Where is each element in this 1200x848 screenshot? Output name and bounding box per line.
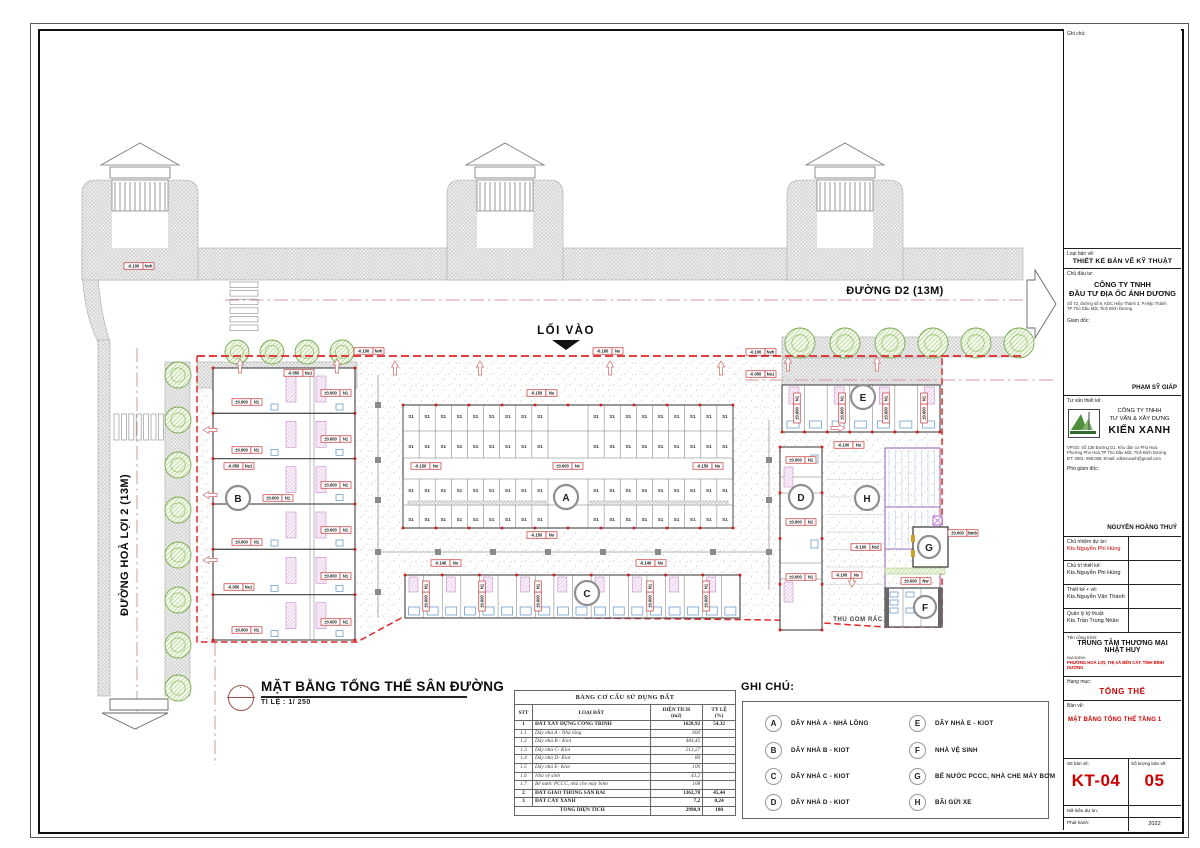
stall-label: S1 [457, 444, 463, 449]
elevation-marker: -0.140Ns [636, 560, 666, 567]
stall-label: S1 [625, 444, 631, 449]
legend-label: DÃY NHÀ A - NHÀ LỒNG [791, 720, 869, 727]
svg-text:N1: N1 [254, 540, 260, 545]
svg-text:±0.000: ±0.000 [266, 496, 279, 501]
svg-text:N1: N1 [808, 458, 814, 463]
deputy-name: NGUYỄN HOÀNG THUỶ [1107, 524, 1177, 531]
svg-text:±0.000: ±0.000 [324, 391, 337, 396]
stall-label: S1 [505, 444, 511, 449]
svg-text:N1: N1 [424, 583, 429, 589]
svg-text:Nvh: Nvh [145, 264, 153, 269]
svg-text:N1: N1 [922, 395, 927, 401]
elevation-marker: ±0.000N1 [839, 393, 846, 423]
stall-label: S1 [690, 517, 696, 522]
svg-text:Ns: Ns [658, 561, 664, 566]
svg-text:N1: N1 [648, 583, 653, 589]
elevation-marker: ±0.000N1 [786, 519, 816, 526]
svg-text:Ns: Ns [615, 349, 621, 354]
elevation-marker: ±0.000N1 [321, 527, 351, 534]
block-label-G: G [918, 536, 940, 558]
tree-icon [165, 542, 191, 568]
stall-label: S1 [722, 488, 728, 493]
svg-text:±0.000: ±0.000 [789, 520, 802, 525]
svg-text:±0.000: ±0.000 [424, 595, 429, 608]
svg-text:Ns1: Ns1 [245, 585, 253, 590]
stall-label: S1 [424, 488, 430, 493]
sheet-qty-label: Số lượng bản vẽ: [1128, 759, 1181, 766]
svg-text:Nvh: Nvh [767, 350, 775, 355]
project-name: NHẬT HUY [1064, 647, 1181, 654]
elevation-marker: ±0.000N1 [535, 581, 542, 611]
type-label: Loại bản vẽ: [1064, 249, 1181, 257]
tree-icon [785, 328, 815, 358]
svg-text:N1: N1 [840, 395, 845, 401]
elevation-marker: -0.100Nvh [746, 349, 776, 356]
sheet-label: Bản vẽ: [1064, 701, 1181, 709]
role-label: Quản lý kỹ thuật: [1064, 609, 1181, 617]
svg-text:±0.000: ±0.000 [480, 595, 485, 608]
sheet-no-value: KT-04 [1064, 771, 1128, 791]
svg-text:Nw: Nw [922, 579, 929, 584]
svg-text:Ns: Ns [549, 533, 555, 538]
svg-text:-0.150: -0.150 [415, 464, 427, 469]
stall-label: S1 [658, 488, 664, 493]
drawing-sheet: S1S1S1S1S1S1S1S1S1S1S1S1S1S1S1S1S1S1S1S1… [0, 0, 1200, 848]
tree-icon [918, 328, 948, 358]
project-label: Tên công trình: [1064, 633, 1181, 640]
stall-label: S1 [408, 517, 414, 522]
stall-label: S1 [722, 414, 728, 419]
svg-text:B: B [234, 494, 241, 505]
svg-text:-0.050: -0.050 [228, 464, 240, 469]
tree-icon [165, 587, 191, 613]
block-label-A: A [554, 485, 578, 509]
legend-key: F [909, 742, 926, 759]
block-label-F: F [914, 596, 936, 618]
elevation-marker: ±0.000N1 [479, 581, 486, 611]
elevation-marker: -0.160Ns [593, 348, 623, 355]
svg-text:±0.000: ±0.000 [704, 595, 709, 608]
stall-label: S1 [658, 517, 664, 522]
legend-key: C [765, 768, 782, 785]
role-value: Kts.Nguyễn Văn Thành [1064, 593, 1181, 600]
category-value: TỔNG THỂ [1064, 687, 1181, 696]
svg-text:ĐƯỜNG HOÀ LỢI 2 (13M): ĐƯỜNG HOÀ LỢI 2 (13M) [118, 474, 131, 616]
legend-label: BỂ NƯỚC PCCC, NHÀ CHE MÁY BƠM [935, 773, 1055, 780]
stall-label: S1 [521, 414, 527, 419]
stall-label: S1 [642, 444, 648, 449]
entrance-arrow-icon [552, 340, 580, 350]
stall-label: S1 [625, 414, 631, 419]
stall-label: S1 [609, 517, 615, 522]
trash-area-label: THU GOM RÁC [833, 616, 883, 623]
svg-text:Nc: Nc [575, 464, 581, 469]
svg-text:±0.000: ±0.000 [789, 575, 802, 580]
svg-text:±0.000: ±0.000 [324, 620, 337, 625]
svg-text:N1: N1 [285, 496, 291, 501]
elevation-marker: ±0.000Nmb [948, 530, 978, 537]
svg-text:N1: N1 [343, 391, 349, 396]
svg-text:N1: N1 [884, 395, 889, 401]
pavilion [787, 143, 903, 280]
svg-text:-0.140: -0.140 [640, 561, 652, 566]
stall-label: S1 [690, 488, 696, 493]
svg-text:±0.000: ±0.000 [884, 407, 889, 420]
svg-text:±0.000: ±0.000 [840, 407, 845, 420]
svg-text:Ns2: Ns2 [872, 545, 880, 550]
tree-icon [260, 340, 284, 364]
table-row: 1.2Dãy nhà B - Kiot484,45 [515, 738, 736, 747]
svg-text:D: D [797, 493, 804, 504]
land-use-table: BẢNG CƠ CẤU SỬ DỤNG ĐẤT STT LOẠI ĐẤT DIỆ… [514, 690, 736, 816]
svg-text:±0.000: ±0.000 [922, 407, 927, 420]
kien-xanh-logo [1068, 409, 1100, 438]
investor-name: CÔNG TY TNHH [1064, 280, 1181, 289]
stall-label: S1 [674, 517, 680, 522]
stall-label: S1 [537, 444, 543, 449]
legend-key: H [909, 794, 926, 811]
svg-text:-0.100: -0.100 [358, 349, 370, 354]
elevation-marker: ±0.000N1 [232, 627, 262, 634]
stall-label: S1 [521, 444, 527, 449]
svg-text:A: A [562, 493, 569, 504]
svg-text:N1: N1 [343, 483, 349, 488]
stall-label: S1 [457, 517, 463, 522]
elevation-marker: ±0.000N1 [786, 457, 816, 464]
svg-text:-0.150: -0.150 [531, 391, 543, 396]
svg-text:N1: N1 [795, 395, 800, 401]
tree-icon [830, 328, 860, 358]
elevation-marker: ±0.000N1 [263, 495, 293, 502]
stall-label: S1 [658, 444, 664, 449]
elevation-marker: ±0.000N1 [321, 573, 351, 580]
block-label-D: D [789, 485, 813, 509]
notes-label: Ghi chú: [1064, 29, 1181, 37]
stall-label: S1 [473, 488, 479, 493]
svg-text:N1: N1 [254, 400, 260, 405]
role-value: Kts.Nguyễn Phi Hùng [1064, 569, 1181, 576]
tree-icon [1004, 328, 1034, 358]
legend-title: GHI CHÚ: [741, 681, 1049, 693]
stall-label: S1 [521, 517, 527, 522]
elevation-marker: ±0.000N1 [921, 393, 928, 423]
svg-text:-0.150: -0.150 [697, 464, 709, 469]
elevation-marker: -0.100Nvh [354, 348, 384, 355]
stall-label: S1 [722, 517, 728, 522]
table-row: 1.7Bể nước PCCC, nhà che máy bơm108 [515, 781, 736, 790]
role-value: Kts.Nguyễn Phi Hùng [1064, 545, 1181, 552]
pavilion [447, 143, 563, 280]
svg-text:±0.000: ±0.000 [536, 595, 541, 608]
elevation-marker: ±0.000N1 [321, 619, 351, 626]
consultant-name: TƯ VẤN & XÂY DỰNG [1102, 416, 1177, 422]
title-block: Ghi chú: Loại bản vẽ: THIẾT KẾ BẢN VẼ KỸ… [1063, 29, 1181, 830]
location-value: PHƯỜNG HOÀ LỢI, THỊ XÃ BẾN CÁT, TỈNH BÌN… [1064, 660, 1181, 670]
table-row: 1.4Dãy nhà D- Kiot80 [515, 755, 736, 764]
svg-text:Ns: Ns [715, 464, 721, 469]
table-row: 1.6Nhà vệ sinh43,2 [515, 772, 736, 781]
svg-text:N1: N1 [480, 583, 485, 589]
project-name: TRUNG TÂM THƯƠNG MẠI [1064, 640, 1181, 647]
svg-text:±0.000: ±0.000 [789, 458, 802, 463]
table-row: 1.5Dãy nhà E- Kiot100 [515, 763, 736, 772]
elevation-marker: -0.050Ns1 [224, 463, 254, 470]
stall-label: S1 [408, 414, 414, 419]
legend-key: B [765, 742, 782, 759]
svg-text:-0.100: -0.100 [128, 264, 140, 269]
tree-icon [165, 407, 191, 433]
legend-label: NHÀ VỆ SINH [935, 747, 978, 754]
svg-text:±0.000: ±0.000 [235, 540, 248, 545]
svg-text:Ns1: Ns1 [767, 372, 775, 377]
tree-icon [295, 340, 319, 364]
block-d-kiot [780, 447, 822, 630]
stall-label: S1 [473, 517, 479, 522]
svg-text:-0.050: -0.050 [288, 371, 300, 376]
stall-label: S1 [625, 517, 631, 522]
svg-text:N1: N1 [343, 437, 349, 442]
stall-label: S1 [408, 444, 414, 449]
stall-label: S1 [489, 517, 495, 522]
legend-key: G [909, 768, 926, 785]
elevation-marker: ±0.000Nw [901, 578, 931, 585]
svg-text:H: H [863, 494, 870, 505]
svg-text:E: E [860, 393, 867, 404]
road-continue-down-rect [110, 699, 168, 710]
stall-label: S1 [625, 488, 631, 493]
stall-label: S1 [690, 414, 696, 419]
investor-name: ĐẦU TƯ ĐỊA ỐC ÁNH DƯƠNG [1064, 289, 1181, 298]
tree-icon [961, 328, 991, 358]
svg-text:±0.000: ±0.000 [556, 464, 569, 469]
table-row: 1ĐẤT XÂY DỰNG CÔNG TRÌNH1628,9254,32 [515, 721, 736, 730]
stall-label: S1 [440, 444, 446, 449]
block-label-H: H [855, 486, 879, 510]
elevation-marker: -0.150Ns [693, 463, 723, 470]
stall-label: S1 [674, 414, 680, 419]
elevation-marker: -0.100Ns2 [851, 544, 881, 551]
stall-label: S1 [593, 517, 599, 522]
stall-label: S1 [690, 444, 696, 449]
elevation-marker: -0.050Ns1 [284, 370, 314, 377]
elevation-marker: -0.150Ns [411, 463, 441, 470]
svg-text:±0.000: ±0.000 [904, 579, 917, 584]
stall-label: S1 [593, 414, 599, 419]
block-c-kiot [405, 575, 740, 618]
issue-year: 2022 [1128, 818, 1181, 827]
svg-text:-0.100: -0.100 [855, 545, 867, 550]
svg-text:±0.000: ±0.000 [235, 448, 248, 453]
elevation-marker: ±0.000N1 [232, 539, 262, 546]
stall-label: S1 [440, 517, 446, 522]
block-label-E: E [851, 385, 875, 409]
table-total-row: TỔNG DIỆN TÍCH2998,9100 [515, 806, 736, 815]
stall-label: S1 [642, 488, 648, 493]
stall-label: S1 [706, 444, 712, 449]
tree-icon [165, 362, 191, 388]
table-row: 2ĐẤT GIAO THÔNG SÂN BÃI1362,7845,44 [515, 789, 736, 798]
role-label: Thiết kế + vẽ: [1064, 585, 1181, 593]
director-name: PHẠM SỸ GIÁP [1132, 384, 1177, 391]
svg-text:-0.160: -0.160 [597, 349, 609, 354]
legend-key: D [765, 794, 782, 811]
stall-label: S1 [706, 517, 712, 522]
svg-text:Nvh: Nvh [375, 349, 383, 354]
tree-icon [330, 340, 354, 364]
legend-key: A [765, 715, 782, 732]
legend-label: DÃY NHÀ C - KIOT [791, 773, 850, 780]
consultant-name: CÔNG TY TNHH [1102, 408, 1177, 414]
road-continue-down-icon [102, 713, 168, 729]
svg-text:G: G [925, 543, 933, 554]
stall-label: S1 [489, 414, 495, 419]
legend-label: DÃY NHÀ E - KIOT [935, 720, 993, 727]
svg-text:-0.100: -0.100 [836, 573, 848, 578]
elevation-marker: -0.100Ns [832, 572, 862, 579]
svg-text:Ns1: Ns1 [305, 371, 313, 376]
svg-text:±0.000: ±0.000 [648, 595, 653, 608]
stall-label: S1 [489, 444, 495, 449]
deputy-label: Phó giám đốc: [1064, 464, 1099, 472]
svg-text:±0.000: ±0.000 [951, 531, 964, 536]
table-row: 1.1Dãy nhà A - Nhà lồng600 [515, 729, 736, 738]
drawing-title-group: MẶT BẰNG TỔNG THỂ SÂN ĐƯỜNG TỈ LỆ : 1/ 2… [228, 679, 504, 711]
legend-label: DÃY NHÀ D - KIOT [791, 799, 850, 806]
stall-label: S1 [642, 414, 648, 419]
elevation-marker: ±0.000N1 [703, 581, 710, 611]
stall-label: S1 [440, 414, 446, 419]
stall-label: S1 [424, 517, 430, 522]
stall-label: S1 [609, 414, 615, 419]
sheet-name: MẶT BẰNG TỔNG THỂ TẦNG 1 [1064, 709, 1181, 723]
stall-label: S1 [489, 488, 495, 493]
walkway-above-e [782, 358, 942, 386]
elevation-marker: -0.050Ns1 [746, 371, 776, 378]
sheet-no-label: Stt bản vẽ: [1064, 759, 1128, 766]
role-value: Kts.Trần Trung Nhân [1064, 617, 1181, 624]
stall-label: S1 [537, 488, 543, 493]
svg-text:N1: N1 [343, 574, 349, 579]
issue-label: Phát hành: [1064, 818, 1089, 825]
entrance-label: LỐI VÀO [537, 323, 595, 337]
drawing-tag-icon [228, 685, 254, 711]
svg-text:Ns: Ns [549, 391, 555, 396]
legend: GHI CHÚ: ADÃY NHÀ A - NHÀ LỒNG BDÃY NHÀ … [741, 681, 1049, 693]
table-row: 1.3Dãy nhà C- Kiot213,27 [515, 746, 736, 755]
svg-text:±0.000: ±0.000 [795, 407, 800, 420]
tree-icon [165, 675, 191, 701]
svg-text:-0.050: -0.050 [750, 372, 762, 377]
tree-icon [165, 497, 191, 523]
director-label: Giám đốc: [1064, 312, 1181, 324]
svg-text:F: F [922, 603, 928, 614]
svg-text:-0.050: -0.050 [228, 585, 240, 590]
block-label-B: B [226, 486, 250, 510]
elevation-marker: -0.150Ns [527, 532, 557, 539]
stall-label: S1 [674, 488, 680, 493]
stall-label: S1 [722, 444, 728, 449]
type-value: THIẾT KẾ BẢN VẼ KỸ THUẬT [1064, 258, 1181, 265]
elevation-marker: ±0.000N1 [786, 574, 816, 581]
elevation-marker: ±0.000N1 [321, 390, 351, 397]
elevation-marker: ±0.000N1 [647, 581, 654, 611]
stall-label: S1 [440, 488, 446, 493]
stall-label: S1 [537, 414, 543, 419]
stall-label: S1 [457, 414, 463, 419]
svg-text:Ns: Ns [453, 561, 459, 566]
block-label-C: C [575, 581, 599, 605]
elevation-marker: -0.050Ns1 [224, 584, 254, 591]
elevation-marker: ±0.000Nc [553, 463, 583, 470]
svg-text:Ns: Ns [854, 573, 860, 578]
tree-icon [165, 632, 191, 658]
svg-text:Nmb: Nmb [968, 531, 978, 536]
elevation-marker: ±0.000N1 [883, 393, 890, 423]
elevation-marker: ±0.000N1 [321, 436, 351, 443]
elevation-marker: ±0.000N1 [232, 447, 262, 454]
stall-label: S1 [609, 444, 615, 449]
svg-text:N1: N1 [704, 583, 709, 589]
investor-label: Chủ đầu tư: [1064, 269, 1181, 277]
legend-label: BÃI GỬI XE [935, 799, 972, 806]
stall-label: S1 [473, 444, 479, 449]
drawing-scale: TỈ LỆ : 1/ 250 [261, 699, 504, 706]
elevation-marker: -0.100Ns [834, 442, 864, 449]
stall-label: S1 [505, 488, 511, 493]
svg-text:N1: N1 [808, 575, 814, 580]
stall-label: S1 [521, 488, 527, 493]
stall-label: S1 [609, 488, 615, 493]
road-hoaloi-label: ĐƯỜNG HOÀ LỢI 2 (13M) [118, 474, 131, 616]
svg-text:±0.000: ±0.000 [324, 574, 337, 579]
sheet-qty-value: 05 [1128, 771, 1181, 791]
tree-icon [875, 328, 905, 358]
stall-label: S1 [537, 517, 543, 522]
svg-text:-0.140: -0.140 [435, 561, 447, 566]
svg-text:N1: N1 [254, 628, 260, 633]
stall-label: S1 [408, 488, 414, 493]
legend-key: E [909, 715, 926, 732]
stall-label: S1 [457, 488, 463, 493]
svg-text:N1: N1 [343, 528, 349, 533]
svg-text:±0.000: ±0.000 [324, 528, 337, 533]
stall-label: S1 [706, 414, 712, 419]
elevation-marker: -0.140Ns [431, 560, 461, 567]
stall-label: S1 [473, 414, 479, 419]
svg-text:N1: N1 [536, 583, 541, 589]
project-code-label: Mã hiệu dự án: [1064, 806, 1181, 813]
consultant-brand: KIẾN XANH [1102, 424, 1177, 436]
road-d2-label: ĐƯỜNG D2 (13M) [846, 284, 943, 297]
category-label: Hạng mục: [1064, 677, 1181, 685]
stall-label: S1 [505, 414, 511, 419]
stall-label: S1 [642, 517, 648, 522]
svg-text:±0.000: ±0.000 [324, 437, 337, 442]
legend-box: ADÃY NHÀ A - NHÀ LỒNG BDÃY NHÀ B - KIOT … [742, 701, 1049, 819]
stall-label: S1 [593, 444, 599, 449]
svg-text:Ns1: Ns1 [245, 464, 253, 469]
stall-label: S1 [505, 517, 511, 522]
pavilion [82, 143, 198, 280]
stall-label: S1 [593, 488, 599, 493]
svg-text:-0.100: -0.100 [838, 443, 850, 448]
stall-label: S1 [658, 414, 664, 419]
tree-icon [225, 340, 249, 364]
elevation-marker: ±0.000N1 [423, 581, 430, 611]
elevation-marker: ±0.000N1 [794, 393, 801, 423]
legend-label: DÃY NHÀ B - KIOT [791, 747, 850, 754]
table-row: 3ĐẤT CÂY XANH7,20,24 [515, 798, 736, 807]
